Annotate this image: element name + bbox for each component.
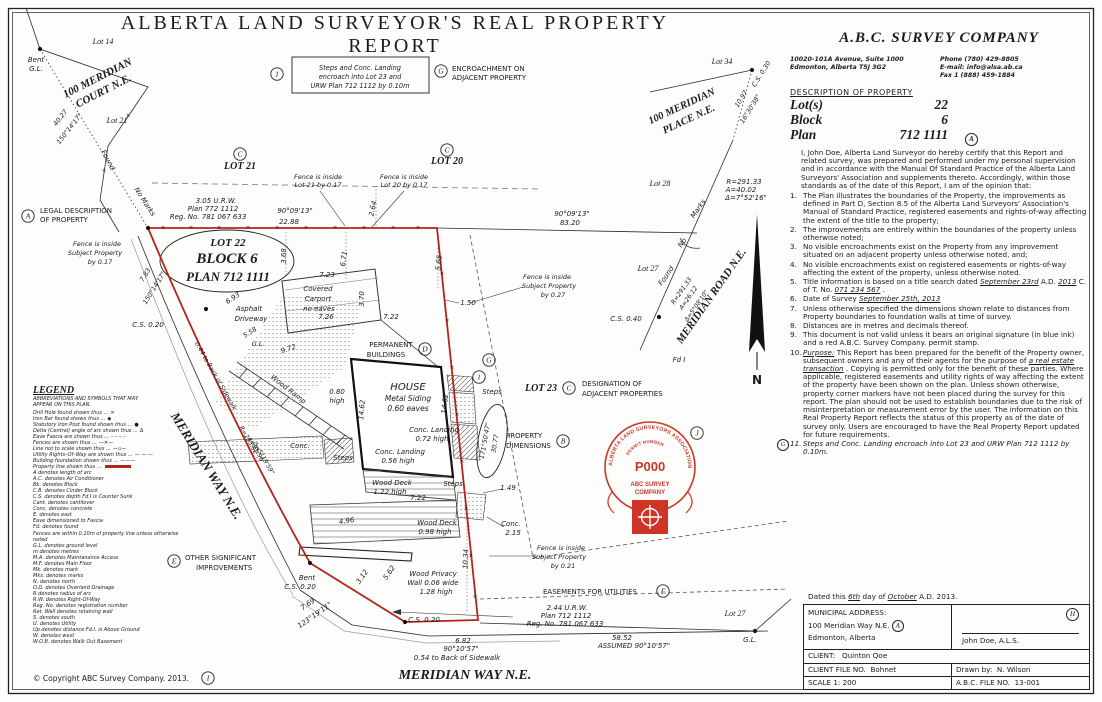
cert-item-text: Date of Survey September 25th, 2013 [803, 294, 940, 303]
plan-label: Wood Privacy [409, 570, 457, 578]
legend-symbol: Δ [140, 428, 143, 434]
survey-marker-dot [657, 315, 661, 319]
survey-marker-dot [750, 68, 754, 72]
survey-marker-dot [38, 47, 42, 51]
plan-label: Reg. No. 781 067 633 [527, 620, 604, 628]
client-value: Quinton Qoe [842, 651, 887, 660]
circled-ref-D: D [419, 343, 431, 355]
fence-mark: × [362, 225, 367, 231]
plan-label: 0.54 to Back of Sidewalk [414, 654, 501, 662]
circled-ref-B: B [557, 435, 569, 447]
svg-text:J: J [695, 429, 699, 438]
fence-mark: × [391, 225, 396, 231]
plan-label: Plan 712 1112 [541, 612, 592, 620]
cert-item-number: 6. [790, 295, 797, 303]
plan-label: Fence is inside [537, 544, 585, 552]
cert-item-number: 8. [790, 322, 797, 330]
fence-mark: × [275, 225, 280, 231]
certification-block: I, John Doe, Alberta Land Surveyor do he… [790, 149, 1089, 457]
legend-symbol: ✕ [110, 410, 114, 416]
client-label: CLIENT: [808, 651, 835, 660]
plan-label: Subject Property [532, 553, 586, 561]
file-row: CLIENT FILE NO. Bohnet Drawn by: N. Wils… [804, 663, 1089, 676]
plan-label: 22.88 [279, 218, 300, 226]
plan-label: by 0.27 [541, 291, 566, 299]
circled-ref-J: J [691, 427, 703, 439]
plan-label: G.L. [29, 65, 43, 73]
fence-mark: × [304, 225, 309, 231]
cert-item-text: Distances are in metres and decimals the… [803, 321, 969, 330]
report-page: ALBERTA LAND SURVEYORS ASSOCIATION PERMI… [0, 0, 1102, 702]
company-email: E-mail: info@alsa.ab.ca [940, 64, 1090, 72]
plan-label: DIMENSIONS [506, 442, 551, 450]
easement-lines [470, 235, 788, 599]
circled-ref-1: 1 [473, 371, 485, 383]
municipal-line1: 100 Meridian Way N.E. [808, 621, 889, 630]
fence-mark: × [445, 318, 450, 324]
company-name: A.B.C. SURVEY COMPANY [788, 30, 1090, 47]
plan-label: Lot 21 [106, 116, 128, 125]
plan-label: Plan 772 1112 [188, 205, 239, 213]
plan-label: 5.62 [382, 564, 398, 582]
signature-cell: H John Doe, A.L.S. [952, 605, 1089, 649]
plan-label: 3.12 [355, 568, 371, 586]
survey-marker-dot [753, 629, 757, 633]
text-segment: A.D. 2013. [917, 592, 958, 601]
plan-label: Wood Deck [417, 519, 458, 527]
badge-a-municipal: A [892, 620, 904, 632]
svg-text:G: G [486, 356, 492, 365]
lots-value: 22 [935, 97, 949, 112]
plan-label: Δ=7°52'16" [724, 194, 767, 202]
plan-label: no eaves [303, 305, 335, 313]
plan-label: Subject Property [68, 249, 122, 257]
stamp-company-1: ABC SURVEY [630, 482, 669, 488]
plan-label: OTHER SIGNIFICANT [185, 554, 257, 562]
cert-item-10: 10.Purpose: This Report has been prepare… [790, 349, 1089, 439]
legend-abbrev-row: Fences are within 0.10m of property line… [33, 531, 185, 543]
plan-label: Fence is inside [380, 173, 428, 181]
client-file-label: CLIENT FILE NO. [808, 665, 866, 674]
circled-ref-G: G [435, 65, 447, 77]
text-segment: Dated this [808, 592, 848, 601]
plan-label: Steps and Conc. Landing [319, 64, 401, 72]
plan-label: Asphalt [235, 305, 263, 313]
plan-label: URW Plan 712 1112 by 0.10m [311, 82, 410, 90]
plan-label: by 0.21 [551, 562, 576, 570]
plan-label: HOUSE [390, 382, 426, 393]
block-label: Block [790, 112, 822, 127]
plan-label: 1.22 high [373, 488, 406, 496]
wood-privacy-wall [299, 547, 412, 561]
plan-label: N [752, 373, 762, 387]
cert-item-7: 7.Unless otherwise specified the dimensi… [790, 305, 1089, 321]
plan-label: A=40.02 [725, 186, 757, 194]
plan-label: 5.65 [434, 254, 444, 271]
plan-label: Reg. No. 781 067 633 [170, 213, 247, 221]
plan-label: Lot 28 [649, 179, 671, 188]
plan-label: ADJACENT PROPERTY [452, 74, 527, 82]
stamp-permit-label: PERMIT NUMBER [625, 439, 665, 456]
plan-label: Metal Siding [385, 394, 432, 403]
plan-label: 90°09'13" [554, 210, 589, 218]
plan-label: LOT 22 [209, 237, 246, 249]
plan-label: 30.77 [489, 433, 500, 454]
plan-label: PROPERTY [506, 432, 543, 440]
svg-text:B: B [561, 437, 566, 446]
plan-label: DESIGNATION OF [582, 380, 642, 388]
block-value: 6 [941, 112, 948, 127]
text-segment: October [888, 592, 917, 601]
cert-item-text: No visible encroachments exist on regist… [803, 260, 1066, 277]
fence-mark: × [469, 553, 474, 559]
cert-item-9: 9.This document is not valid unless it b… [790, 331, 1089, 347]
fence-dashed-line [152, 183, 540, 189]
legend-title: LEGEND [33, 385, 185, 396]
plan-label: Steps [443, 480, 463, 488]
survey-marker-dot [308, 561, 312, 565]
survey-marker-dot [204, 307, 208, 311]
cert-item-number: 11. [790, 440, 801, 448]
plan-label: 0.60 eaves [387, 404, 428, 413]
plan-label: 6.93 [224, 291, 241, 306]
plan-label: 7.22 [383, 313, 399, 321]
surveyor-permit-stamp: ALBERTA LAND SURVEYORS ASSOCIATION PERMI… [605, 422, 695, 534]
plan-label: © Copyright ABC Survey Company. 2013. [33, 674, 189, 683]
plan-label: LOT 21 [223, 161, 256, 172]
dated-line: Dated this 6th day of October A.D. 2013. [808, 592, 1088, 601]
badge-a: A [965, 133, 978, 146]
plan-label: C.S. 0.20 [132, 321, 164, 329]
company-phone: Phone (780) 429-8805 [940, 56, 1090, 64]
circled-ref-G: G [483, 354, 495, 366]
abc-file-label: A.B.C. FILE NO. [956, 678, 1010, 687]
circled-ref-A: A [22, 210, 34, 222]
plan-label: 83.20 [560, 219, 581, 227]
plan-label: Bent [28, 56, 45, 64]
text-segment: 6th [848, 592, 860, 601]
plan-label: Steps [333, 454, 353, 462]
cert-item-number: 2. [790, 226, 797, 234]
plan-label: BUILDINGS [367, 351, 406, 359]
cert-item-text: The improvements are entirely within the… [803, 225, 1076, 242]
fence-mark: × [333, 225, 338, 231]
client-file-value: Bohnet [870, 665, 896, 674]
legend-symbol: – – – – [111, 434, 126, 440]
plan-label: PERMANENT [369, 341, 413, 349]
plan-label: ASSUMED 90°10'57" [597, 642, 670, 650]
plan-label: 7.83 [138, 267, 152, 284]
cert-item-number: 10. [790, 349, 801, 357]
plan-label: C.S. 0.20 [284, 583, 316, 591]
plan-label: PLAN 712 1111 [186, 269, 270, 284]
title-block-table: MUNICIPAL ADDRESS: 100 Meridian Way N.E.… [803, 604, 1090, 690]
cert-item-text: Title information is based on a title se… [803, 277, 1086, 294]
plan-label: Lot 34 [711, 57, 733, 66]
plan-label: BLOCK 6 [195, 251, 258, 267]
municipal-line2: Edmonton, Alberta [808, 632, 947, 645]
svg-text:G: G [438, 67, 444, 76]
text-segment: September 23rd [980, 277, 1039, 286]
plan-label: Lot 27 [637, 264, 660, 273]
plan-label: Fence is inside [73, 240, 121, 248]
plan-label: 0.56 high [381, 457, 414, 465]
plan-label: 3.70 [358, 291, 366, 307]
drawn-by-label: Drawn by: [956, 665, 992, 674]
certification-items: 1.The Plan illustrates the boundaries of… [790, 192, 1089, 456]
plan-label: Fence is inside [523, 273, 571, 281]
cert-item-text: No visible encroachments exist on the Pr… [803, 242, 1058, 259]
lots-label: Lot(s) [790, 97, 823, 112]
plan-label: 3.68 [280, 248, 288, 264]
fence-mark: × [450, 365, 455, 371]
text-segment: September 25th, 2013 [859, 294, 940, 303]
circled-ref-C: C [441, 144, 453, 156]
scale-row: SCALE 1: 200 A.B.C. FILE NO. 13-001 [804, 676, 1089, 690]
description-title: DESCRIPTION OF PROPERTY [790, 88, 1090, 97]
svg-text:A: A [25, 212, 31, 221]
plan-label: Conc. Landing [409, 426, 459, 434]
stamp-company-2: COMPANY [635, 490, 665, 496]
svg-text:C: C [237, 150, 243, 159]
cert-item-11: G11.Steps and Conc. Landing encroach int… [790, 440, 1089, 456]
cert-item-number: 7. [790, 305, 797, 313]
plan-label: Conc. [290, 442, 310, 450]
plan-label: 7.26 [318, 313, 334, 321]
plan-label: IMPROVEMENTS [196, 564, 253, 572]
text-segment: 2013 [1058, 277, 1076, 286]
plan-label: Bent [299, 574, 316, 582]
fence-mark: × [464, 506, 469, 512]
plan-label: Carport [305, 295, 332, 303]
surveyor-signature-name: John Doe, A.L.S. [962, 633, 1079, 648]
plan-label: Fd I [673, 356, 686, 364]
plan-label: 171°50'47" [478, 422, 492, 460]
plan-label: Conc. [501, 520, 521, 528]
svg-text:C: C [444, 146, 450, 155]
cert-item-4: 4.No visible encroachments exist on regi… [790, 261, 1089, 277]
drawn-by-value: N. Wilson [997, 665, 1031, 674]
plan-label: Driveway [235, 315, 269, 323]
circled-ref-C: C [563, 382, 575, 394]
plan-label: 14.62 [440, 393, 450, 414]
plan-label: 5.58 [242, 325, 259, 340]
plan-label: Lot 20 by 0.17 [380, 181, 428, 189]
plan-label: G.L. [743, 636, 757, 644]
municipal-address-cell: MUNICIPAL ADDRESS: 100 Meridian Way N.E.… [804, 605, 952, 649]
plan-label: 0.98 high [418, 528, 451, 536]
plan-label: C.S. 0.30 [750, 59, 772, 88]
fence-mark: × [189, 225, 194, 231]
plan-label: No [676, 237, 688, 249]
legend-symbol: — — — [135, 452, 153, 458]
plan-label: 7.22 [410, 494, 426, 502]
municipal-row: MUNICIPAL ADDRESS: 100 Meridian Way N.E.… [804, 605, 1089, 649]
fence-mark: × [473, 594, 478, 600]
fence-mark: × [440, 271, 445, 277]
plan-label: 6.71 [339, 250, 349, 267]
company-addr1: 10020-101A Avenue, Suite 1000 [790, 56, 940, 64]
plan-label: R=291.33 [726, 178, 761, 186]
plan-label: Conc. Landing [375, 448, 425, 456]
fence-mark: × [455, 412, 460, 418]
plan-label: 3.05 U.R.W. [196, 197, 237, 205]
cert-item-5: 5.Title information is based on a title … [790, 278, 1089, 294]
plan-label: Wood Deck [372, 479, 413, 487]
cert-item-text: Unless otherwise specified the dimension… [803, 304, 1070, 321]
plan-label: OF PROPERTY [40, 216, 89, 224]
cert-item-number: 9. [790, 331, 797, 339]
svg-text:1: 1 [275, 70, 279, 79]
plan-label: ADJACENT PROPERTIES [582, 390, 663, 398]
scale-value: SCALE 1: 200 [804, 677, 952, 690]
badge-h: H [1066, 608, 1079, 621]
cert-item-number: 1. [790, 192, 797, 200]
cert-item-text: This document is not valid unless it bea… [803, 330, 1074, 347]
stamp-permit-number: P000 [635, 459, 665, 474]
svg-text:D: D [421, 345, 428, 354]
cert-item-number: 4. [790, 261, 797, 269]
plan-label: MERIDIAN WAY N.E. [398, 668, 532, 683]
survey-marker-dot [403, 620, 407, 624]
plan-label: 1.28 high [419, 588, 452, 596]
plan-label: G.L. [252, 340, 265, 348]
plan-label: 0.72 high [415, 435, 448, 443]
svg-text:C: C [566, 384, 572, 393]
text-segment: day of [860, 592, 887, 601]
plan-label: C.S. 0.20 [408, 616, 440, 624]
plan-label: high [329, 397, 344, 405]
plan-label: encroach into Lot 23 and [319, 73, 402, 81]
plan-label: LEGAL DESCRIPTION [40, 207, 112, 215]
plan-label: 1.49 [500, 484, 516, 492]
client-row: CLIENT: Quinton Qoe [804, 649, 1089, 663]
legend-rows: Drill Hole found shown thus ...✕Iron Bar… [33, 410, 185, 646]
cert-item-8: 8.Distances are in metres and decimals t… [790, 322, 1089, 330]
cert-item-2: 2.The improvements are entirely within t… [790, 226, 1089, 242]
svg-text:1: 1 [477, 373, 481, 382]
cert-item-3: 3.No visible encroachments exist on the … [790, 243, 1089, 259]
plan-label: Fence is inside [294, 173, 342, 181]
plan-label: Marks [689, 198, 708, 220]
text-segment: . [880, 285, 885, 294]
circled-ref-1: 1 [271, 68, 283, 80]
plan-label: 0.80 [329, 388, 345, 396]
circled-ref-C: C [234, 148, 246, 160]
plan-label: C.S. 0.40 [610, 315, 642, 323]
svg-text:I: I [206, 674, 210, 683]
property-line-sample [105, 465, 131, 468]
cert-item-number: 3. [790, 243, 797, 251]
circled-ref-I: I [202, 672, 214, 684]
plan-label: 2.15 [505, 529, 521, 537]
plan-label: 7.23 [319, 271, 335, 279]
plan-value: 712 1111 [900, 127, 948, 142]
fence-mark: × [161, 225, 166, 231]
fence-mark: × [246, 225, 251, 231]
company-fax: Fax 1 (888) 459-1884 [940, 72, 1090, 80]
fence-mark: × [126, 113, 131, 119]
plan-label: Subject Property [522, 282, 576, 290]
plan-label: LOT 20 [430, 156, 463, 167]
plan-label: by 0.17 [88, 258, 113, 266]
plan-label: 90°09'13" [277, 207, 312, 215]
cert-item-text: Steps and Conc. Landing encroach into Lo… [803, 439, 1070, 456]
fence-mark: × [416, 225, 421, 231]
plan-label: 2.44 U.R.W. [547, 604, 588, 612]
certification-intro: I, John Doe, Alberta Land Surveyor do he… [790, 149, 1089, 190]
municipal-label: MUNICIPAL ADDRESS: [808, 607, 947, 620]
plan-label: 58.52 [612, 634, 633, 642]
plan-label: Plan [790, 127, 816, 142]
plan-label: 6.82 [455, 637, 471, 645]
plan-label: Covered [303, 285, 333, 293]
plan-label: 90°10'57" [443, 645, 478, 653]
description-of-property: DESCRIPTION OF PROPERTY Lot(s)22 Block 6… [790, 88, 1090, 142]
plan-label: Steps [482, 388, 502, 396]
fence-mark: × [217, 225, 222, 231]
north-arrow [749, 214, 765, 370]
plan-label: 1.50 [460, 299, 476, 307]
badge-g: G [777, 439, 789, 451]
cert-item-6: 6.Date of Survey September 25th, 2013 [790, 295, 1089, 303]
survey-marker-dot [146, 226, 150, 230]
text-segment: . Copying is permitted only for the bene… [803, 364, 1084, 439]
abc-file-value: 13-001 [1015, 678, 1040, 687]
plan-label: ENCROACHMENT ON [452, 65, 525, 73]
plan-label: No Marks [132, 186, 157, 218]
plan-label: Lot 27 [724, 609, 747, 618]
company-address-block: 10020-101A Avenue, Suite 1000 Edmonton, … [790, 56, 1090, 80]
legend: LEGEND ABBREVIATIONS AND SYMBOLS THAT MA… [33, 385, 185, 645]
company-addr2: Edmonton, Alberta T5J 3G2 [790, 64, 940, 72]
legend-subtitle: ABBREVIATIONS AND SYMBOLS THAT MAY APPEA… [33, 397, 153, 409]
fence-mark: × [460, 459, 465, 465]
plan-label: Lot 21 by 0.17 [294, 181, 342, 189]
text-segment: A.D. [1039, 277, 1058, 286]
cert-item-text: Purpose: This Report has been prepared f… [803, 348, 1084, 439]
svg-text:F: F [660, 587, 666, 596]
plan-label: LOT 23 [524, 383, 557, 394]
cert-item-text: The Plan illustrates the boundaries of t… [803, 191, 1086, 225]
circled-ref-F: F [657, 585, 669, 597]
text-segment: Date of Survey [803, 294, 859, 303]
fence-mark: × [102, 168, 107, 174]
plan-label: Wall 0.06 wide [407, 579, 458, 587]
cert-item-number: 5. [790, 278, 797, 286]
cert-item-1: 1.The Plan illustrates the boundaries of… [790, 192, 1089, 225]
plan-label: 2.64 [368, 200, 379, 217]
plan-label: EASEMENTS FOR UTILITIES [543, 588, 638, 596]
text-segment: 071 234 567 [835, 285, 881, 294]
legend-abbrev-row: W.O.B. denotes Walk Out Basement [33, 639, 185, 645]
page-title: ALBERTA LAND SURVEYOR'S REAL PROPERTY RE… [100, 12, 690, 58]
